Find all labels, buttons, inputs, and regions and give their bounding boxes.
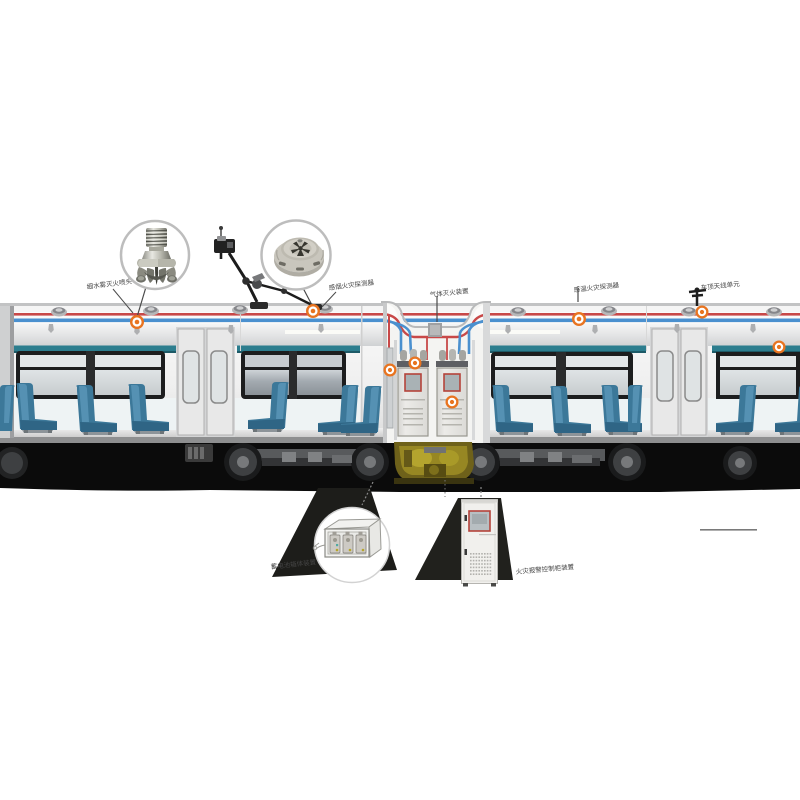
svg-text:火灾报警控制柜装置: 火灾报警控制柜装置 <box>515 562 575 576</box>
svg-text:感温火灾探测器: 感温火灾探测器 <box>573 280 620 294</box>
svg-text:感烟火灾探测器: 感烟火灾探测器 <box>328 277 375 292</box>
svg-text:车顶天线单元: 车顶天线单元 <box>700 279 740 292</box>
svg-text:气体灭火装置: 气体灭火装置 <box>429 286 469 299</box>
svg-text:细水雾灭火喷头: 细水雾灭火喷头 <box>86 276 133 291</box>
